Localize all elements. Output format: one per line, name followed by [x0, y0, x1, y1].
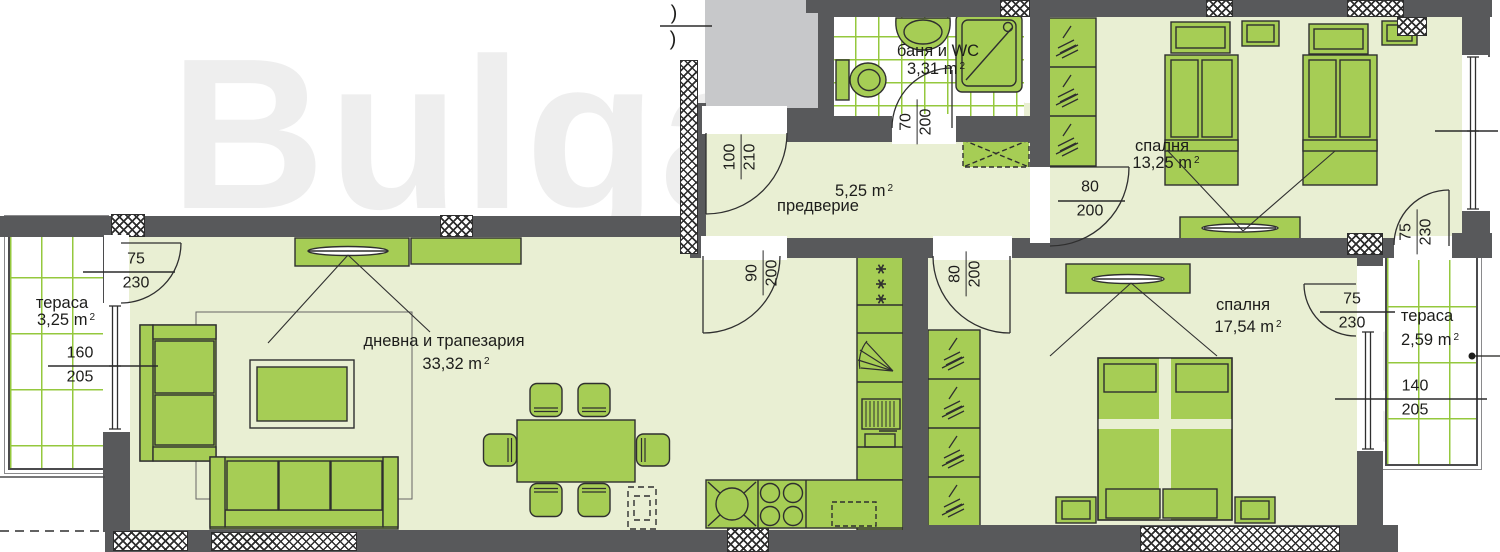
edge-mark-top: ) [671, 3, 678, 26]
floor-plan: Bulgarian Properties [0, 0, 1500, 552]
room-label-hallway: предверие [777, 197, 859, 215]
dim-bedroom2-terrace-door: 75230 [1339, 291, 1366, 334]
window-bedroom1 [1462, 55, 1488, 211]
dim-bedroom2-door: 80200 [947, 252, 986, 297]
room-area-terrace-right: 2,59 m2 [1401, 331, 1459, 349]
dim-living-opening: 90200 [744, 251, 783, 296]
room-label-bathroom: баня и WC [897, 42, 979, 60]
room-label-bedroom1: спалня [1135, 137, 1189, 155]
dim-terrace-right-window: 140205 [1402, 378, 1429, 421]
dim-bedroom1-door: 80200 [1077, 179, 1104, 222]
room-area-living: 33,32 m2 [422, 355, 489, 373]
room-label-terrace-right: тераса [1401, 307, 1453, 325]
room-area-bedroom2: 17,54 m2 [1214, 318, 1281, 336]
dim-bath-door: 70200 [898, 100, 937, 145]
dim-terrace-left-door: 75230 [123, 251, 150, 294]
room-label-bedroom2: спалня [1216, 296, 1270, 314]
room-area-bedroom1: 13,25 m2 [1132, 154, 1199, 172]
window-bedroom2-terrace [1357, 330, 1383, 451]
dim-terrace-left-window: 160205 [67, 345, 94, 388]
room-area-terrace-left: 3,25 m2 [37, 311, 95, 329]
room-label-terrace-left: тераса [36, 294, 88, 312]
room-area-bathroom: 3,31 m2 [907, 60, 965, 78]
edge-mark-bottom: ) [670, 29, 677, 52]
window-living-terrace [103, 303, 130, 432]
dim-bedroom1-terrace-door: 75230 [1398, 210, 1437, 255]
dim-entrance-door: 100210 [722, 135, 761, 180]
section-marker [1469, 353, 1500, 360]
room-label-living: дневна и трапезария [363, 332, 524, 350]
